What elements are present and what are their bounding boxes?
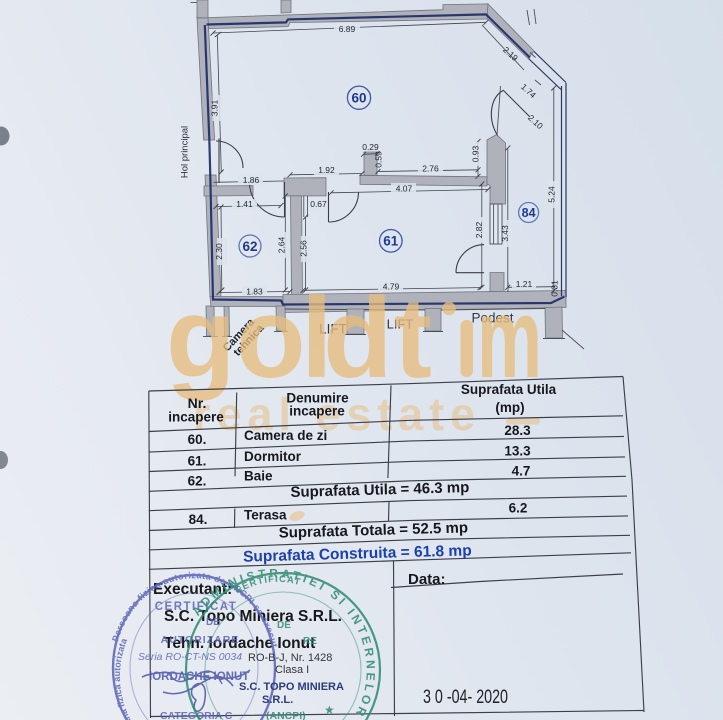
svg-text:61.: 61. bbox=[188, 454, 207, 469]
svg-text:3.43: 3.43 bbox=[500, 225, 510, 242]
svg-text:0.31: 0.31 bbox=[550, 280, 560, 297]
svg-text:62.: 62. bbox=[188, 474, 207, 489]
svg-text:DE: DE bbox=[277, 620, 291, 631]
svg-text:AUTORIZARE: AUTORIZARE bbox=[161, 634, 240, 646]
svg-text:1.86: 1.86 bbox=[243, 175, 260, 185]
svg-text:3 0 -04- 2020: 3 0 -04- 2020 bbox=[423, 686, 508, 708]
svg-text:28.3: 28.3 bbox=[504, 423, 531, 438]
svg-text:★: ★ bbox=[324, 703, 335, 717]
svg-text:2.10: 2.10 bbox=[526, 113, 545, 132]
svg-text:0.59: 0.59 bbox=[374, 151, 384, 168]
svg-text:RO-B-J, Nr. 1428: RO-B-J, Nr. 1428 bbox=[248, 652, 332, 664]
svg-text:incapere: incapere bbox=[289, 404, 345, 419]
svg-text:61: 61 bbox=[383, 234, 399, 249]
svg-text:2.56: 2.56 bbox=[299, 240, 309, 257]
svg-text:Data:: Data: bbox=[408, 571, 446, 588]
svg-text:Terasa: Terasa bbox=[244, 508, 287, 523]
svg-text:Suprafata Utila = 46.3 mp: Suprafata Utila = 46.3 mp bbox=[290, 479, 469, 501]
svg-text:2.64: 2.64 bbox=[277, 236, 287, 253]
svg-text:6.2: 6.2 bbox=[509, 501, 528, 516]
svg-text:Suprafata Totala = 52.5 mp: Suprafata Totala = 52.5 mp bbox=[278, 519, 468, 541]
svg-text:Camera de zi: Camera de zi bbox=[244, 428, 327, 443]
svg-text:S.R.L.: S.R.L. bbox=[262, 694, 293, 706]
svg-text:0.93: 0.93 bbox=[471, 145, 481, 162]
svg-text:1.41: 1.41 bbox=[236, 199, 253, 209]
svg-text:2.82: 2.82 bbox=[474, 221, 484, 238]
svg-text:4.07: 4.07 bbox=[396, 184, 413, 194]
svg-text:4.7: 4.7 bbox=[512, 464, 531, 479]
svg-text:0.29: 0.29 bbox=[362, 142, 379, 152]
svg-text:Baie: Baie bbox=[244, 469, 273, 484]
svg-text:RE: RE bbox=[303, 636, 317, 647]
svg-text:13.3: 13.3 bbox=[504, 443, 531, 458]
svg-text:Hol principal: Hol principal bbox=[180, 126, 191, 178]
svg-text:Suprafata Utila: Suprafata Utila bbox=[461, 382, 557, 397]
svg-text:(ANCPI): (ANCPI) bbox=[266, 710, 306, 720]
svg-text:Seria RO-CT-NS 0034: Seria RO-CT-NS 0034 bbox=[138, 651, 242, 663]
svg-text:S.C. TOPO MINIERA: S.C. TOPO MINIERA bbox=[239, 681, 344, 693]
svg-text:1.74: 1.74 bbox=[519, 82, 538, 101]
svg-text:84.: 84. bbox=[189, 512, 208, 527]
svg-text:2.30: 2.30 bbox=[214, 243, 224, 260]
svg-text:60: 60 bbox=[351, 91, 366, 106]
svg-text:84: 84 bbox=[522, 206, 536, 220]
svg-text:2.76: 2.76 bbox=[422, 164, 439, 174]
svg-text:0.67: 0.67 bbox=[310, 199, 327, 209]
svg-text:5.24: 5.24 bbox=[547, 186, 557, 203]
svg-text:6.89: 6.89 bbox=[339, 24, 356, 34]
svg-text:62: 62 bbox=[242, 239, 257, 254]
svg-text:goldt: goldt bbox=[166, 275, 432, 402]
svg-text:Dormitor: Dormitor bbox=[244, 449, 302, 464]
svg-text:60.: 60. bbox=[188, 432, 207, 447]
svg-text:Clasa I: Clasa I bbox=[275, 664, 309, 676]
svg-text:3.91: 3.91 bbox=[210, 99, 220, 116]
svg-text:Suprafata Construita = 61.8 m: Suprafata Construita = 61.8 mp bbox=[243, 542, 472, 565]
svg-text:incapere: incapere bbox=[168, 410, 224, 425]
svg-text:(mp): (mp) bbox=[495, 400, 524, 415]
svg-text:1.92: 1.92 bbox=[318, 165, 335, 175]
